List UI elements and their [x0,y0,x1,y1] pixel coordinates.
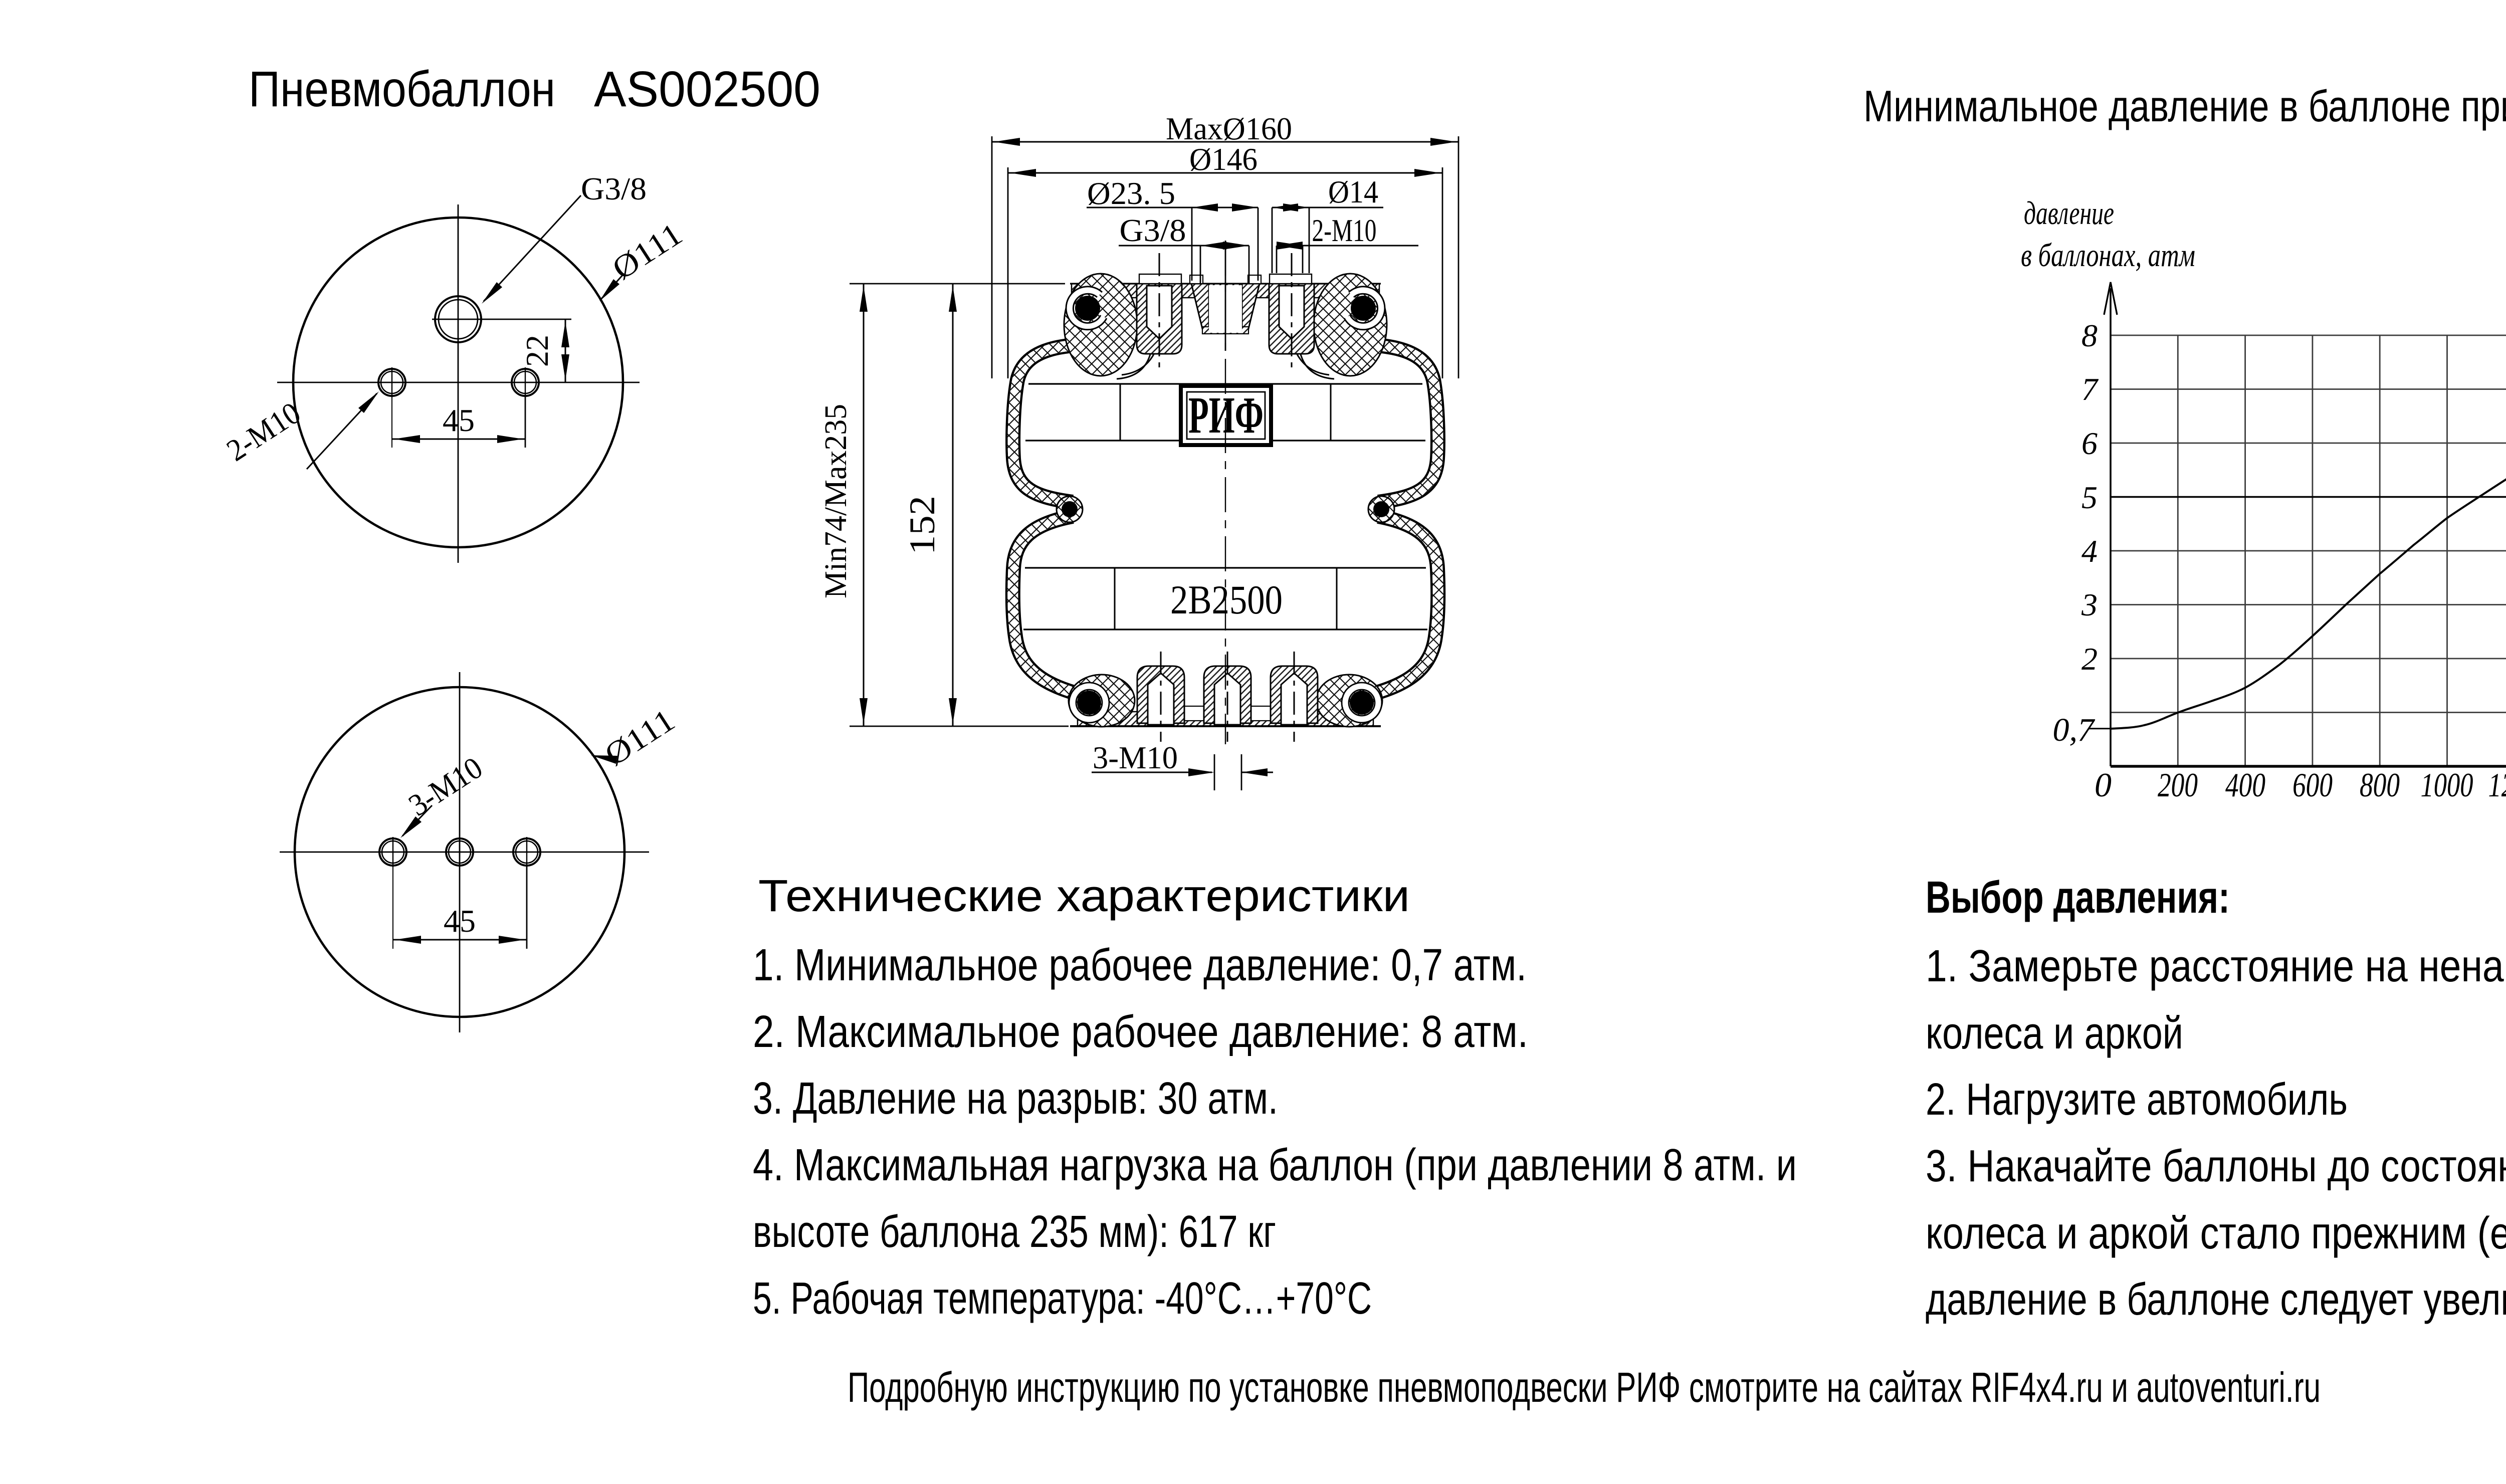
svg-text:8: 8 [2081,318,2098,353]
svg-text:400: 400 [2225,766,2265,804]
svg-text:600: 600 [2292,766,2333,804]
svg-text:2В2500: 2В2500 [1170,577,1283,622]
svg-text:Ø14: Ø14 [1328,174,1378,209]
svg-text:3. Накачайте баллоны до состоя: 3. Накачайте баллоны до состояния, чтобы… [1926,1141,2506,1191]
svg-text:0,7: 0,7 [2053,712,2096,748]
svg-text:давление в баллоне следует уве: давление в баллоне следует увеличить) [1926,1275,2506,1325]
svg-text:200: 200 [2158,766,2198,804]
svg-text:1000: 1000 [2421,766,2473,804]
svg-text:Подробную инструкцию по устано: Подробную инструкцию по установке пневмо… [848,1364,2321,1411]
svg-text:Пневмобаллон: Пневмобаллон [249,61,555,117]
svg-text:5: 5 [2081,480,2098,515]
svg-text:800: 800 [2360,766,2400,804]
svg-text:Выбор давления:: Выбор давления: [1926,873,2230,923]
svg-text:152: 152 [902,496,942,555]
svg-text:6: 6 [2081,426,2098,461]
svg-text:1. Минимальное рабочее давлени: 1. Минимальное рабочее давление: 0,7 атм… [753,940,1527,990]
svg-text:2: 2 [2081,641,2098,677]
svg-text:2. Нагрузите автомобиль: 2. Нагрузите автомобиль [1926,1075,2348,1125]
svg-text:22: 22 [519,335,555,367]
svg-text:2-M10: 2-M10 [1312,213,1377,248]
svg-text:4. Максимальная нагрузка на ба: 4. Максимальная нагрузка на баллон (при … [753,1140,1797,1190]
svg-text:Минимальное давление в баллоне: Минимальное давление в баллоне при нагру… [1863,81,2506,131]
svg-text:4: 4 [2081,533,2098,569]
svg-text:1. Замерьте расстояние на нена: 1. Замерьте расстояние на ненагруженном … [1926,941,2506,991]
svg-text:Технические характеристики: Технические характеристики [758,871,1410,921]
svg-text:45: 45 [444,903,476,939]
svg-text:7: 7 [2081,371,2099,407]
svg-text:высоте баллона 235 мм): 617 кг: высоте баллона 235 мм): 617 кг [753,1207,1276,1257]
svg-text:Ø146: Ø146 [1189,141,1258,177]
svg-text:5. Рабочая температура: -40°С…: 5. Рабочая температура: -40°С…+70°С [753,1274,1372,1324]
svg-text:3: 3 [2081,587,2098,622]
svg-text:давление: давление [2024,195,2114,232]
svg-text:G3/8: G3/8 [1120,213,1186,248]
svg-text:в баллонах, атм: в баллонах, атм [2021,237,2195,274]
svg-text:G3/8: G3/8 [581,171,647,206]
svg-text:колеса и аркой: колеса и аркой [1926,1008,2183,1058]
svg-text:AS002500: AS002500 [594,61,820,117]
svg-text:Min74/Max235: Min74/Max235 [819,404,853,598]
svg-text:2. Максимальное рабочее давлен: 2. Максимальное рабочее давление: 8 атм. [753,1007,1528,1057]
svg-text:0: 0 [2095,766,2112,804]
svg-text:1200: 1200 [2488,766,2506,804]
svg-text:45: 45 [443,402,475,438]
svg-text:3. Давление на разрыв: 30 атм.: 3. Давление на разрыв: 30 атм. [753,1074,1278,1124]
svg-text:Ø23. 5: Ø23. 5 [1087,175,1175,211]
svg-text:колеса и аркой стало прежним (: колеса и аркой стало прежним (если Вы хо… [1926,1208,2506,1258]
svg-text:3-M10: 3-M10 [1093,740,1178,775]
